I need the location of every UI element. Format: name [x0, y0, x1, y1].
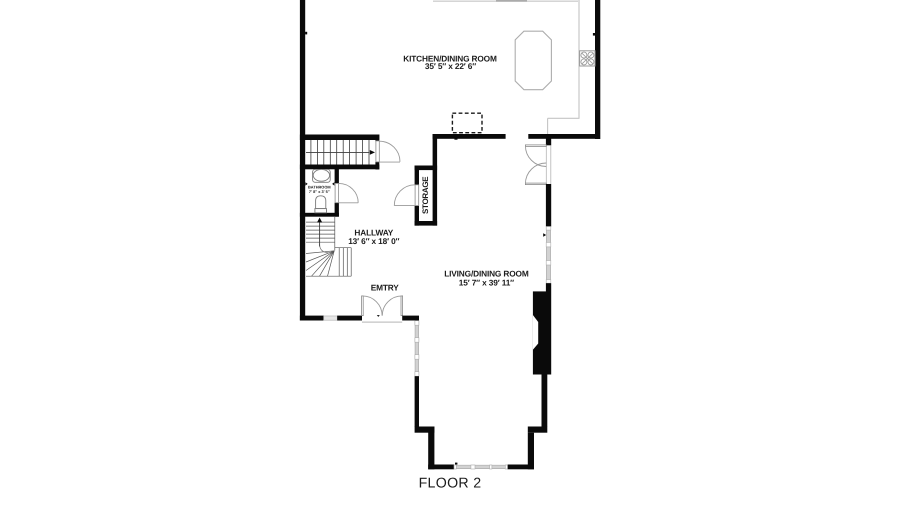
svg-text:STORAGE: STORAGE: [421, 176, 430, 214]
svg-text:FLOOR 2: FLOOR 2: [419, 475, 482, 491]
svg-text:EMTRY: EMTRY: [371, 282, 400, 292]
svg-text:7′ 8″ x 3′ 5″: 7′ 8″ x 3′ 5″: [309, 189, 330, 194]
svg-text:35′ 5″ x 22′ 6″: 35′ 5″ x 22′ 6″: [425, 61, 476, 71]
svg-text:13′ 6″ x 18′ 0″: 13′ 6″ x 18′ 0″: [348, 236, 399, 246]
svg-text:15′ 7″ x 39′ 11″: 15′ 7″ x 39′ 11″: [459, 277, 514, 287]
